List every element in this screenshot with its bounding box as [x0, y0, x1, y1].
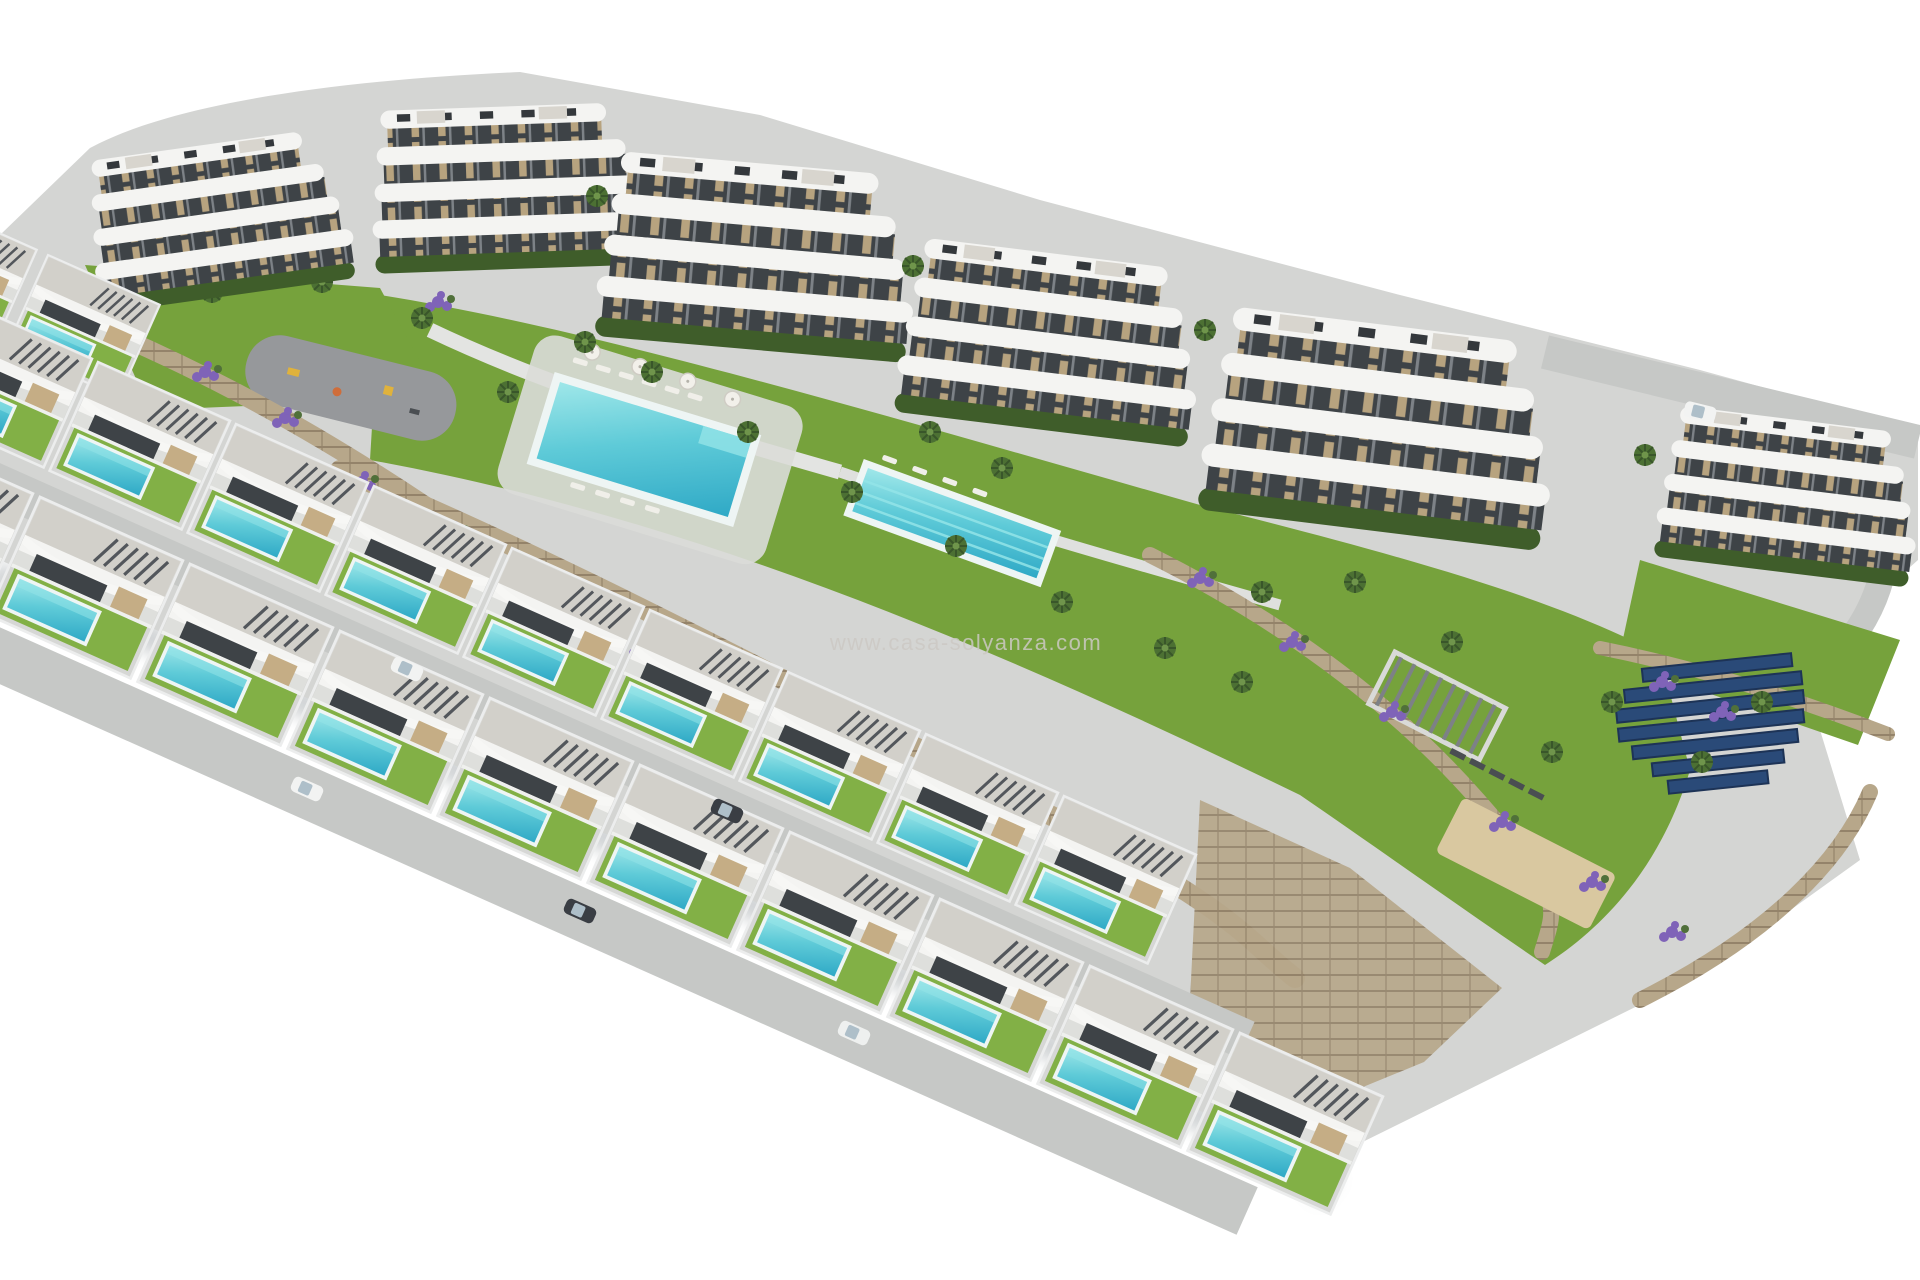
- apartment-block: [592, 150, 924, 363]
- render-scene: www.casa-solyanza.com: [0, 0, 1920, 1280]
- apartment-block: [1652, 404, 1920, 587]
- development-aerial-render: www.casa-solyanza.com: [0, 0, 1920, 1280]
- watermark: www.casa-solyanza.com: [829, 630, 1102, 655]
